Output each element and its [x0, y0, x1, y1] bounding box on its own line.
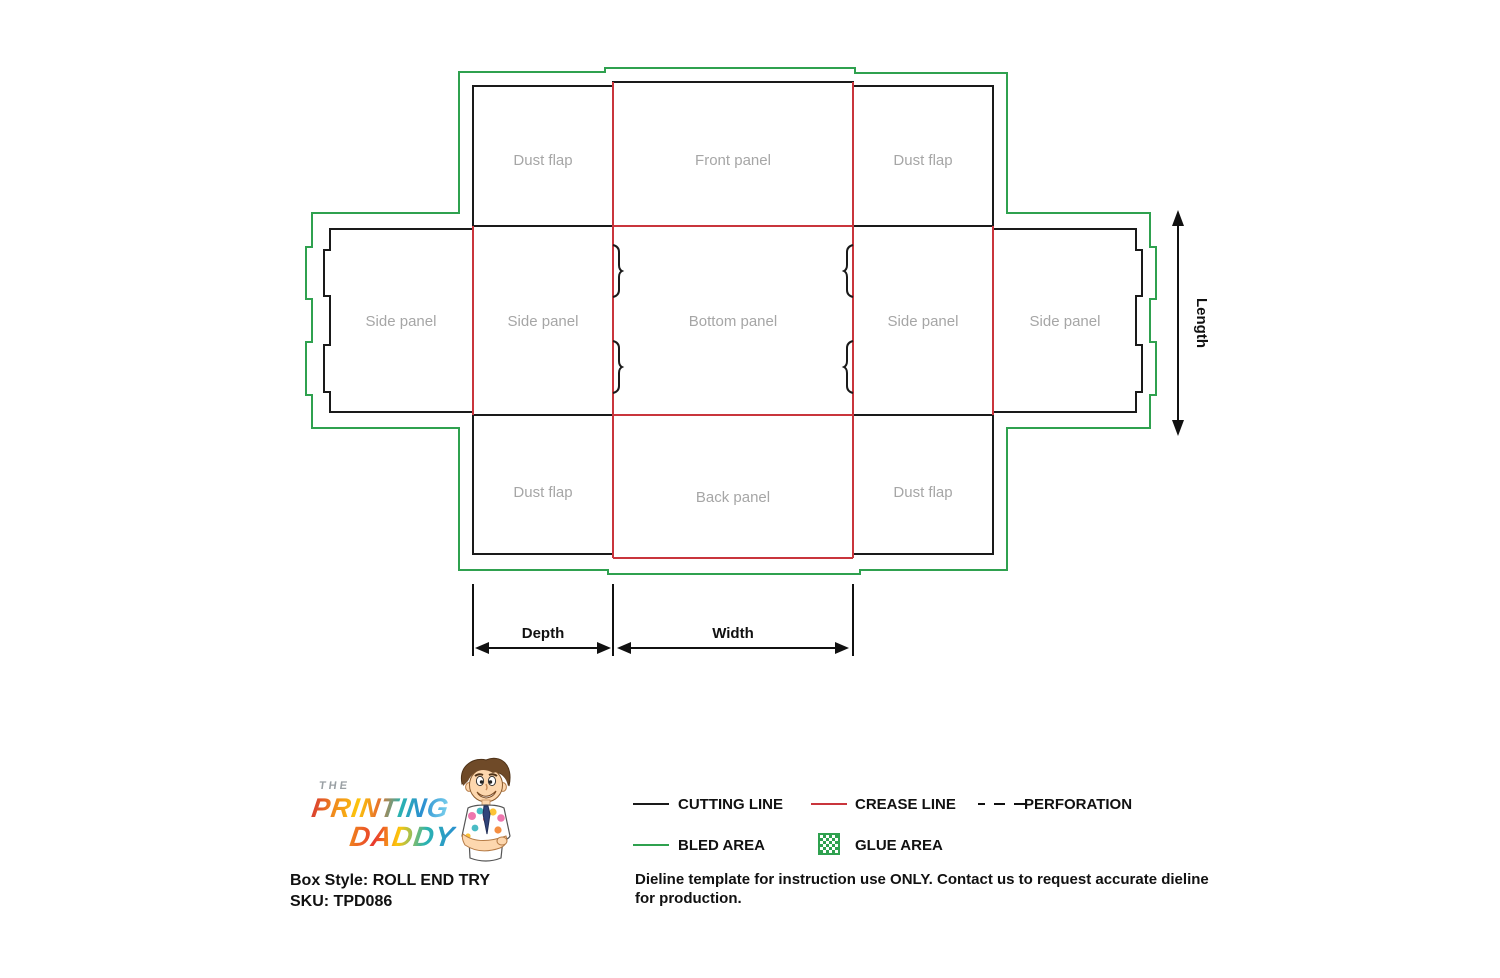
- length-label: Length: [1193, 298, 1210, 348]
- panel-label-dust-flap-top-right: Dust flap: [893, 152, 952, 169]
- legend-label-glue-area: GLUE AREA: [855, 837, 943, 854]
- logo-word-printing: PRINTING: [310, 793, 451, 824]
- mascot-illustration: [448, 756, 524, 874]
- legend-label-bled-area: BLED AREA: [678, 837, 765, 854]
- notch-bracket-right-lower: [844, 341, 853, 393]
- sku-text: SKU: TPD086: [290, 893, 392, 911]
- legend-swatch-bled-area: [633, 844, 669, 846]
- length-arrow-head-bottom: [1172, 420, 1184, 436]
- width-arrow-head-left: [617, 642, 631, 654]
- legend-label-crease-line: CREASE LINE: [855, 796, 956, 813]
- dieline-template-page: Dust flap Front panel Dust flap Side pan…: [0, 0, 1500, 978]
- disclaimer-text: Dieline template for instruction use ONL…: [635, 870, 1223, 908]
- panel-label-dust-flap-top-left: Dust flap: [513, 152, 572, 169]
- dimension-ticks: [473, 584, 853, 656]
- mascot-pupil-right: [489, 780, 492, 783]
- brand-logo-block: THE PRINTING DADDY: [288, 756, 588, 926]
- mascot-pupil-left: [480, 780, 483, 783]
- panel-label-side-outer-left: Side panel: [366, 313, 437, 330]
- legend-label-cutting-line: CUTTING LINE: [678, 796, 783, 813]
- logo-word-daddy: DADDY: [348, 821, 457, 853]
- legend-swatch-cutting-line: [633, 803, 669, 805]
- box-style-text: Box Style: ROLL END TRY: [290, 872, 490, 890]
- width-arrow-head-right: [835, 642, 849, 654]
- notch-bracket-right-upper: [844, 245, 853, 297]
- legend: CUTTING LINE CREASE LINE PERFORATION BLE…: [633, 793, 1233, 923]
- panel-label-side-inner-left: Side panel: [508, 313, 579, 330]
- panel-label-bottom: Bottom panel: [689, 313, 777, 330]
- legend-swatch-perforation: [978, 803, 1025, 805]
- legend-label-perforation: PERFORATION: [1024, 796, 1132, 813]
- legend-swatch-crease-line: [811, 803, 847, 805]
- depth-arrow-head-right: [597, 642, 611, 654]
- depth-label: Depth: [522, 625, 565, 642]
- panel-label-dust-flap-bot-left: Dust flap: [513, 484, 572, 501]
- panel-label-dust-flap-bot-right: Dust flap: [893, 484, 952, 501]
- panel-label-side-outer-right: Side panel: [1030, 313, 1101, 330]
- width-label: Width: [712, 625, 754, 642]
- legend-swatch-glue-area: [818, 833, 840, 855]
- mascot-hand: [497, 837, 507, 845]
- length-arrow-head-top: [1172, 210, 1184, 226]
- depth-arrow-head-left: [475, 642, 489, 654]
- panel-label-side-inner-right: Side panel: [888, 313, 959, 330]
- notch-bracket-left-lower: [613, 341, 622, 393]
- panel-label-back: Back panel: [696, 489, 770, 506]
- panel-label-front: Front panel: [695, 152, 771, 169]
- logo-word-the: THE: [318, 780, 351, 792]
- notch-bracket-left-upper: [613, 245, 622, 297]
